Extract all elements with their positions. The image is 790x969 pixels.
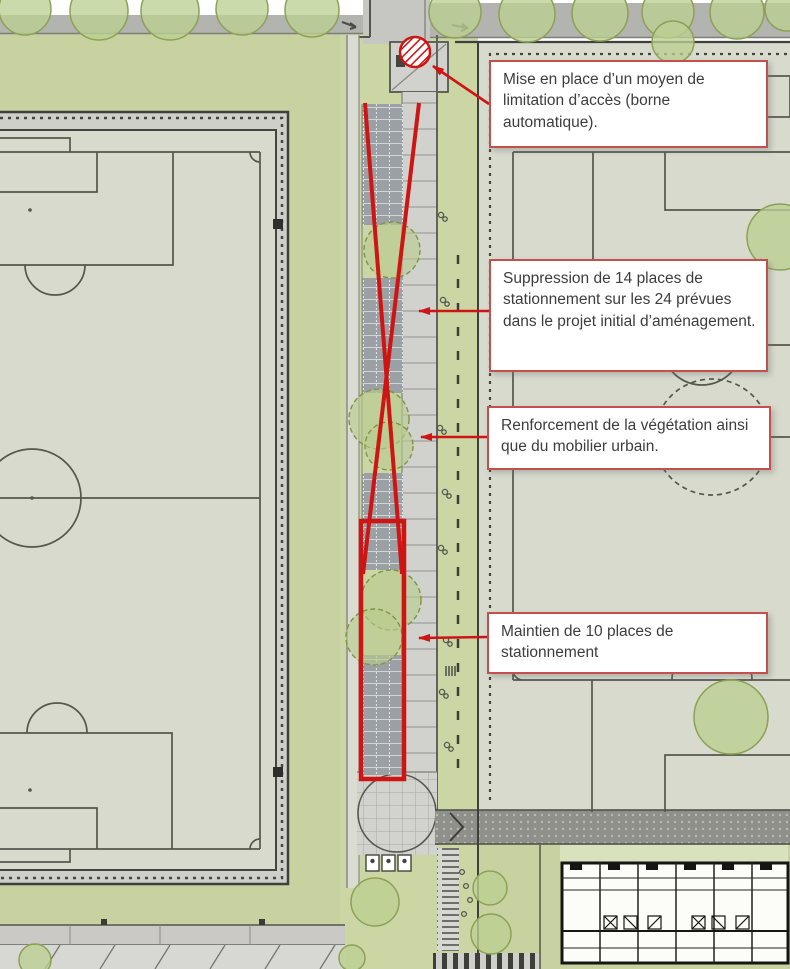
callout-parking-removal: Suppression de 14 places de stationnemen… (489, 259, 768, 372)
building-floor-plan (560, 845, 788, 963)
container-icons (366, 855, 411, 871)
callout-vegetation: Renforcement de la végétation ainsi que … (487, 406, 771, 470)
bollard-marker (101, 919, 107, 925)
callout-parking-removal-text: Suppression de 14 places de stationnemen… (503, 270, 755, 330)
callout-parking-kept-text: Maintien de 10 places de stationnement (501, 623, 673, 661)
automatic-bollard-marker (400, 37, 430, 67)
callout-access-control: Mise en place d’un moyen de limitation d… (489, 60, 768, 148)
site-plan: Mise en place d’un moyen de limitation d… (0, 0, 790, 969)
left-sports-field (0, 112, 288, 884)
bollard-marker (259, 919, 265, 925)
leader-arrow-kept (419, 637, 487, 638)
speed-table (435, 810, 790, 844)
gate-marker (273, 219, 283, 229)
callout-parking-kept: Maintien de 10 places de stationnement (487, 612, 768, 674)
callout-access-control-text: Mise en place d’un moyen de limitation d… (503, 71, 705, 131)
callout-vegetation-text: Renforcement de la végétation ainsi que … (501, 417, 748, 455)
bottom-left-street (0, 919, 345, 969)
gate-marker (273, 767, 283, 777)
bike-rack-strip (437, 848, 459, 951)
pedestrian-crossing (433, 953, 540, 969)
